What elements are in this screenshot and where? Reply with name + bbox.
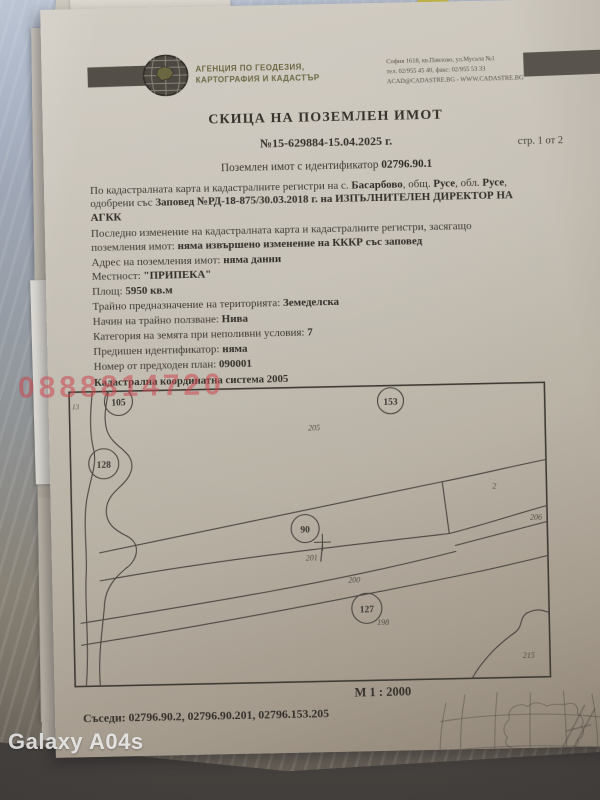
parcel-number: 127 <box>360 605 375 615</box>
field-label: Трайно предназначение на територията: <box>92 297 283 313</box>
parcel-intro: Поземлен имот с идентификатор 02796.90.1 <box>43 154 600 178</box>
field-value: няма данни <box>223 253 281 266</box>
village-name: Басарбово <box>351 178 403 191</box>
parcel-boundary <box>99 534 450 581</box>
agency-logo: АГЕНЦИЯ ПО ГЕОДЕЗИЯ, КАРТОГРАФИЯ И КАДАС… <box>87 54 330 103</box>
parcel-number: 128 <box>97 461 112 471</box>
camera-model-watermark: Galaxy A04s <box>8 729 144 755</box>
edge-number: 201 <box>306 554 318 563</box>
edge-number: 205 <box>308 424 320 433</box>
document-body: По кадастралната карта и кадастралните р… <box>90 176 528 374</box>
document-number: №15-629884-15.04.2025 г. <box>43 129 600 156</box>
parcel-number: 153 <box>383 398 398 408</box>
parcel-boundary <box>471 610 550 678</box>
paragraph-cadastral-map: По кадастралната карта и кадастралните р… <box>90 176 525 225</box>
parcel-number: 90 <box>300 526 310 536</box>
parcel-boundary <box>442 460 546 482</box>
region-name: Русе <box>482 176 504 188</box>
header-bar <box>523 49 600 76</box>
field-value: няма <box>222 343 247 356</box>
field-value: Земеделска <box>283 296 339 309</box>
field-value: Нива <box>222 313 249 326</box>
parcel-boundary <box>455 522 547 546</box>
edge-number: 206 <box>530 513 542 522</box>
municipality-name: Русе <box>433 177 455 189</box>
agency-name: АГЕНЦИЯ ПО ГЕОДЕЗИЯ, КАРТОГРАФИЯ И КАДАС… <box>195 62 319 86</box>
field-value: 7 <box>307 326 313 338</box>
pen-marks <box>551 700 600 753</box>
text-segment: , обл. <box>455 177 483 190</box>
edge-number: 215 <box>523 651 535 660</box>
agency-address: София 1618, кв.Павлово, ул.Мусала №1 тел… <box>386 53 524 87</box>
agency-address-block: София 1618, кв.Павлово, ул.Мусала №1 тел… <box>329 49 582 98</box>
field-label: Площ: <box>92 286 125 299</box>
parcel-boundary <box>98 482 443 553</box>
parcel-id: 02796.90.1 <box>381 158 432 171</box>
neighbors-label: Съседи: <box>83 711 129 726</box>
field-value: 5950 кв.м <box>125 285 173 298</box>
field-value: "ПРИПЕКА" <box>143 269 211 282</box>
agency-name-line2: КАРТОГРАФИЯ И КАДАСТЪР <box>196 73 320 86</box>
phone-number-watermark: 0888814720 <box>18 368 225 406</box>
letterhead: АГЕНЦИЯ ПО ГЕОДЕЗИЯ, КАРТОГРАФИЯ И КАДАС… <box>87 49 582 103</box>
globe-logo-icon <box>139 49 192 102</box>
field-label: Предишен идентификатор: <box>93 343 222 358</box>
neighbors-value: 02796.90.2, 02796.90.201, 02796.153.205 <box>128 706 329 724</box>
text-segment: , общ. <box>403 178 434 191</box>
document-title: СКИЦА НА ПОЗЕМЛЕН ИМОТ <box>42 104 600 132</box>
parcel-boundary <box>80 556 550 646</box>
parcel-boundary <box>442 482 449 534</box>
field-label: Адрес на поземления имот: <box>91 254 223 269</box>
field-label: Начин на трайно ползване: <box>93 313 222 328</box>
cadastral-map: 105 128 153 90 127 13 205 2 206 201 200 … <box>68 382 551 688</box>
edge-number: 200 <box>348 576 360 585</box>
edge-number: 198 <box>377 618 389 627</box>
edge-number: 2 <box>492 482 496 491</box>
field-label: Категория на земята при неполивни услови… <box>93 327 307 343</box>
photo-of-document: АГЕНЦИЯ ПО ГЕОДЕЗИЯ, КАРТОГРАФИЯ И КАДАС… <box>0 0 600 800</box>
page-indicator: стр. 1 от 2 <box>518 135 564 147</box>
boundary-line <box>80 392 99 686</box>
field-label: Местност: <box>92 270 144 283</box>
parcel-intro-text: Поземлен имот с идентификатор <box>221 159 382 174</box>
